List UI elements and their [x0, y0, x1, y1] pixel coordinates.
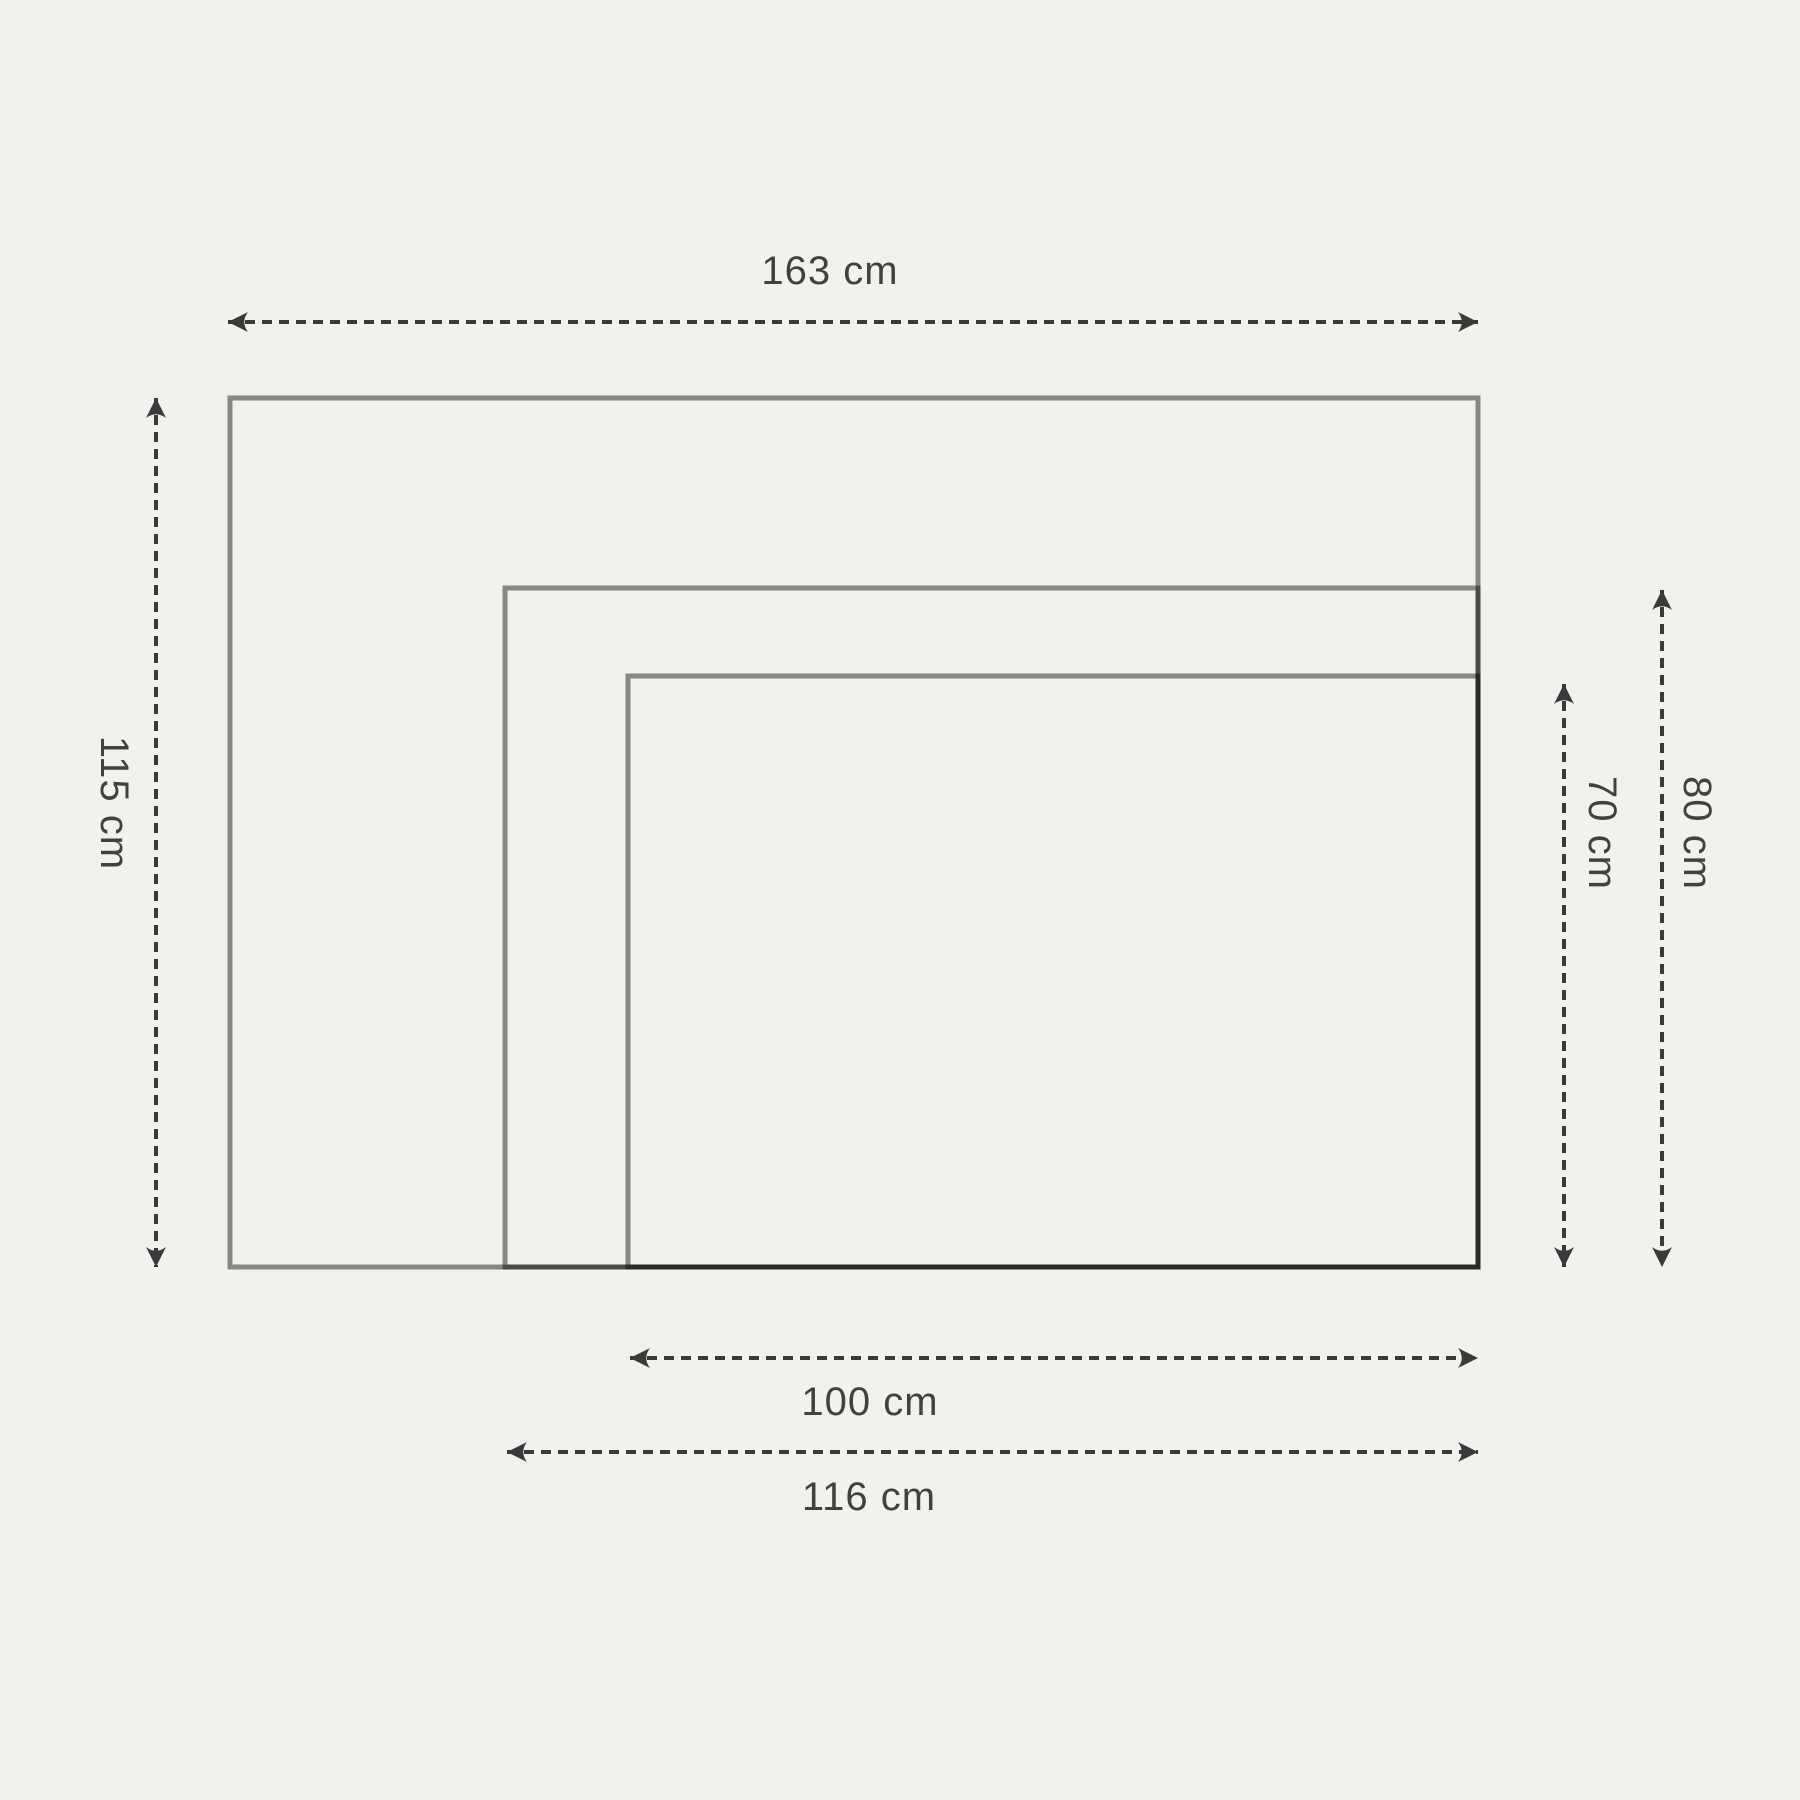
- dimension-diagram-page: 163 cm 115 cm 70 cm 80 cm 100 cm 116 cm: [0, 0, 1800, 1800]
- middle-height-label: 80 cm: [1675, 776, 1719, 890]
- inner-width-label: 100 cm: [801, 1380, 938, 1424]
- middle-width-label: 116 cm: [802, 1475, 936, 1519]
- dimension-arrows: [156, 322, 1662, 1452]
- inner-height-label: 70 cm: [1580, 776, 1624, 890]
- inner-rectangle: [628, 676, 1478, 1267]
- rectangles: [230, 398, 1478, 1267]
- dimension-diagram: 163 cm 115 cm 70 cm 80 cm 100 cm 116 cm: [0, 0, 1800, 1800]
- middle-rectangle: [505, 588, 1478, 1267]
- outer-height-label: 115 cm: [92, 736, 136, 870]
- outer-width-label: 163 cm: [761, 249, 898, 293]
- dimension-labels: 163 cm 115 cm 70 cm 80 cm 100 cm 116 cm: [92, 249, 1719, 1519]
- outer-rectangle: [230, 398, 1478, 1267]
